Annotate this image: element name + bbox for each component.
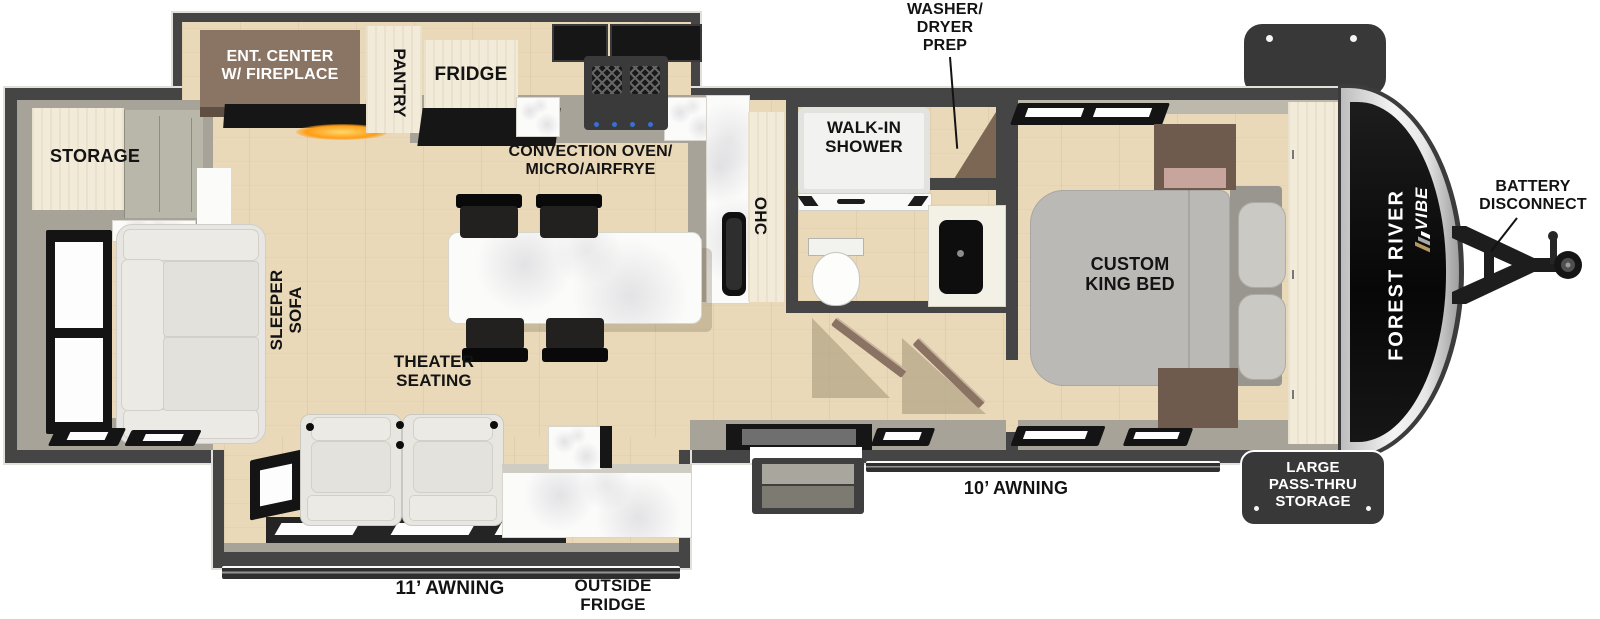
faucet-icon xyxy=(957,250,964,257)
pantry-label: PANTRY xyxy=(389,28,409,138)
awning-front-label: 10’ AWNING xyxy=(936,478,1096,498)
hitch-a-frame xyxy=(1450,222,1590,308)
ohc-label: OHC xyxy=(750,192,770,240)
glass-corner xyxy=(797,196,818,206)
seat-headrest xyxy=(311,417,391,441)
pedestal-side xyxy=(600,426,612,468)
dinette-chair xyxy=(536,194,602,238)
wardrobe-handle-icon xyxy=(1292,150,1294,159)
cupholder-icon xyxy=(306,423,314,431)
sink-basin xyxy=(726,218,742,290)
nightstand xyxy=(1158,368,1238,428)
window-pane xyxy=(883,432,922,440)
pass-thru-storage-label: LARGE PASS-THRU STORAGE xyxy=(1242,460,1384,510)
chair-seat xyxy=(460,206,518,238)
floorplan-canvas: STORAGE SLEEPER SOFA ENT. CENTER W/ FIRE… xyxy=(0,0,1600,619)
window-pane xyxy=(55,242,103,328)
storage-label: STORAGE xyxy=(25,146,165,166)
seat-back xyxy=(413,441,493,493)
awning-rail-front xyxy=(866,461,1220,472)
sofa-arm xyxy=(123,229,259,261)
step xyxy=(762,486,854,508)
cooktop xyxy=(584,56,668,130)
bedroom-bottom-window xyxy=(1010,426,1105,446)
fridge-label: FRIDGE xyxy=(424,64,518,85)
burner-icon xyxy=(592,66,622,94)
brand-model-label: VIBE xyxy=(1412,187,1431,231)
chair-seat xyxy=(466,318,524,350)
counter-section xyxy=(516,97,560,137)
bottom-window xyxy=(124,430,201,446)
step xyxy=(762,464,854,484)
theater-seat xyxy=(300,414,402,526)
stove-knob-icon xyxy=(594,122,599,127)
burner-icon xyxy=(630,66,660,94)
glass-corner xyxy=(907,196,928,206)
brand-maker-label: FOREST RIVER xyxy=(1386,168,1410,383)
outside-kitchen-counter xyxy=(502,464,692,538)
shower-handle-icon xyxy=(837,199,865,204)
landing-mat xyxy=(742,429,856,445)
toilet xyxy=(808,238,862,308)
sleeper-sofa xyxy=(116,224,266,444)
chair-seat xyxy=(540,206,598,238)
window-pane xyxy=(1025,108,1084,117)
washer-dryer-label: WASHER/ DRYER PREP xyxy=(890,1,1000,55)
theater-seating-label: THEATER SEATING xyxy=(368,352,500,390)
pass-thru-storage-box: LARGE PASS-THRU STORAGE xyxy=(1240,450,1386,526)
ent-center-label: ENT. CENTER W/ FIREPLACE xyxy=(200,48,360,84)
pillow xyxy=(1238,202,1286,288)
window-pane xyxy=(55,338,103,422)
hall-bottom-window xyxy=(871,428,936,446)
rear-window xyxy=(46,230,112,434)
rivet-icon xyxy=(1366,506,1371,511)
rivet-icon xyxy=(1266,35,1273,42)
dinette-chair xyxy=(456,194,522,238)
battery-disconnect-label: BATTERY DISCONNECT xyxy=(1466,178,1600,214)
kitchen-sink xyxy=(722,212,746,296)
window-pane xyxy=(1133,432,1180,439)
bedroom-bottom-window xyxy=(1123,428,1194,446)
vanity-cabinet xyxy=(928,205,1006,307)
cabinet-door-seam xyxy=(191,118,192,212)
vibe-logo-stripes xyxy=(1415,233,1430,249)
nightstand-front xyxy=(1164,168,1226,188)
slideout-side-window xyxy=(250,449,302,520)
wall-gap xyxy=(197,168,231,228)
window-pane xyxy=(143,434,184,441)
bottom-window xyxy=(48,428,126,446)
window-pane xyxy=(260,464,292,507)
seat-cushion xyxy=(307,495,395,521)
sleeper-sofa-label: SLEEPER SOFA xyxy=(267,245,309,375)
bedroom-top-window xyxy=(1010,103,1170,125)
king-bed-label: CUSTOM KING BED xyxy=(1048,254,1212,294)
cupholder-icon xyxy=(396,421,404,429)
wardrobe-handle-icon xyxy=(1292,270,1294,279)
dinette-table xyxy=(448,232,702,324)
pillow xyxy=(1238,294,1286,380)
outside-fridge-label: OUTSIDE FRIDGE xyxy=(554,576,672,614)
brand-model-logo: VIBE xyxy=(1412,176,1432,260)
theater-seat xyxy=(402,414,504,526)
sofa-back xyxy=(121,259,165,411)
bedroom-wall xyxy=(1006,100,1018,360)
rivet-icon xyxy=(1350,35,1357,42)
entry-steps xyxy=(752,458,864,514)
convection-label: CONVECTION OVEN/ MICRO/AIRFRYE xyxy=(488,143,693,179)
cupholder-icon xyxy=(490,421,498,429)
awning-rear-label: 11’ AWNING xyxy=(332,578,568,599)
seat-headrest xyxy=(413,417,493,441)
cupholder-icon xyxy=(396,441,404,449)
nightstand xyxy=(1154,124,1236,190)
window-pane xyxy=(67,432,109,440)
rivet-icon xyxy=(1254,506,1259,511)
walk-in-shower-label: WALK-IN SHOWER xyxy=(800,118,928,156)
counter-pedestal xyxy=(548,426,602,470)
stove-knob-icon xyxy=(612,122,617,127)
slideout-bottom-band xyxy=(224,543,679,552)
wardrobe-handle-icon xyxy=(1292,390,1294,399)
chair-seat xyxy=(546,318,604,350)
stove-knob-icon xyxy=(630,122,635,127)
sofa-cushion xyxy=(163,261,259,337)
front-wardrobe xyxy=(1288,102,1340,444)
stove-knob-icon xyxy=(648,122,653,127)
shower-glass xyxy=(798,193,932,211)
window-pane xyxy=(1093,108,1152,117)
seat-cushion xyxy=(409,495,497,521)
toilet-bowl xyxy=(812,252,860,306)
chair-back xyxy=(542,348,608,362)
vanity-sink xyxy=(939,220,983,294)
window-pane xyxy=(1023,431,1088,439)
sofa-cushion xyxy=(163,337,259,411)
seat-back xyxy=(311,441,391,493)
dinette-chair xyxy=(542,318,608,362)
